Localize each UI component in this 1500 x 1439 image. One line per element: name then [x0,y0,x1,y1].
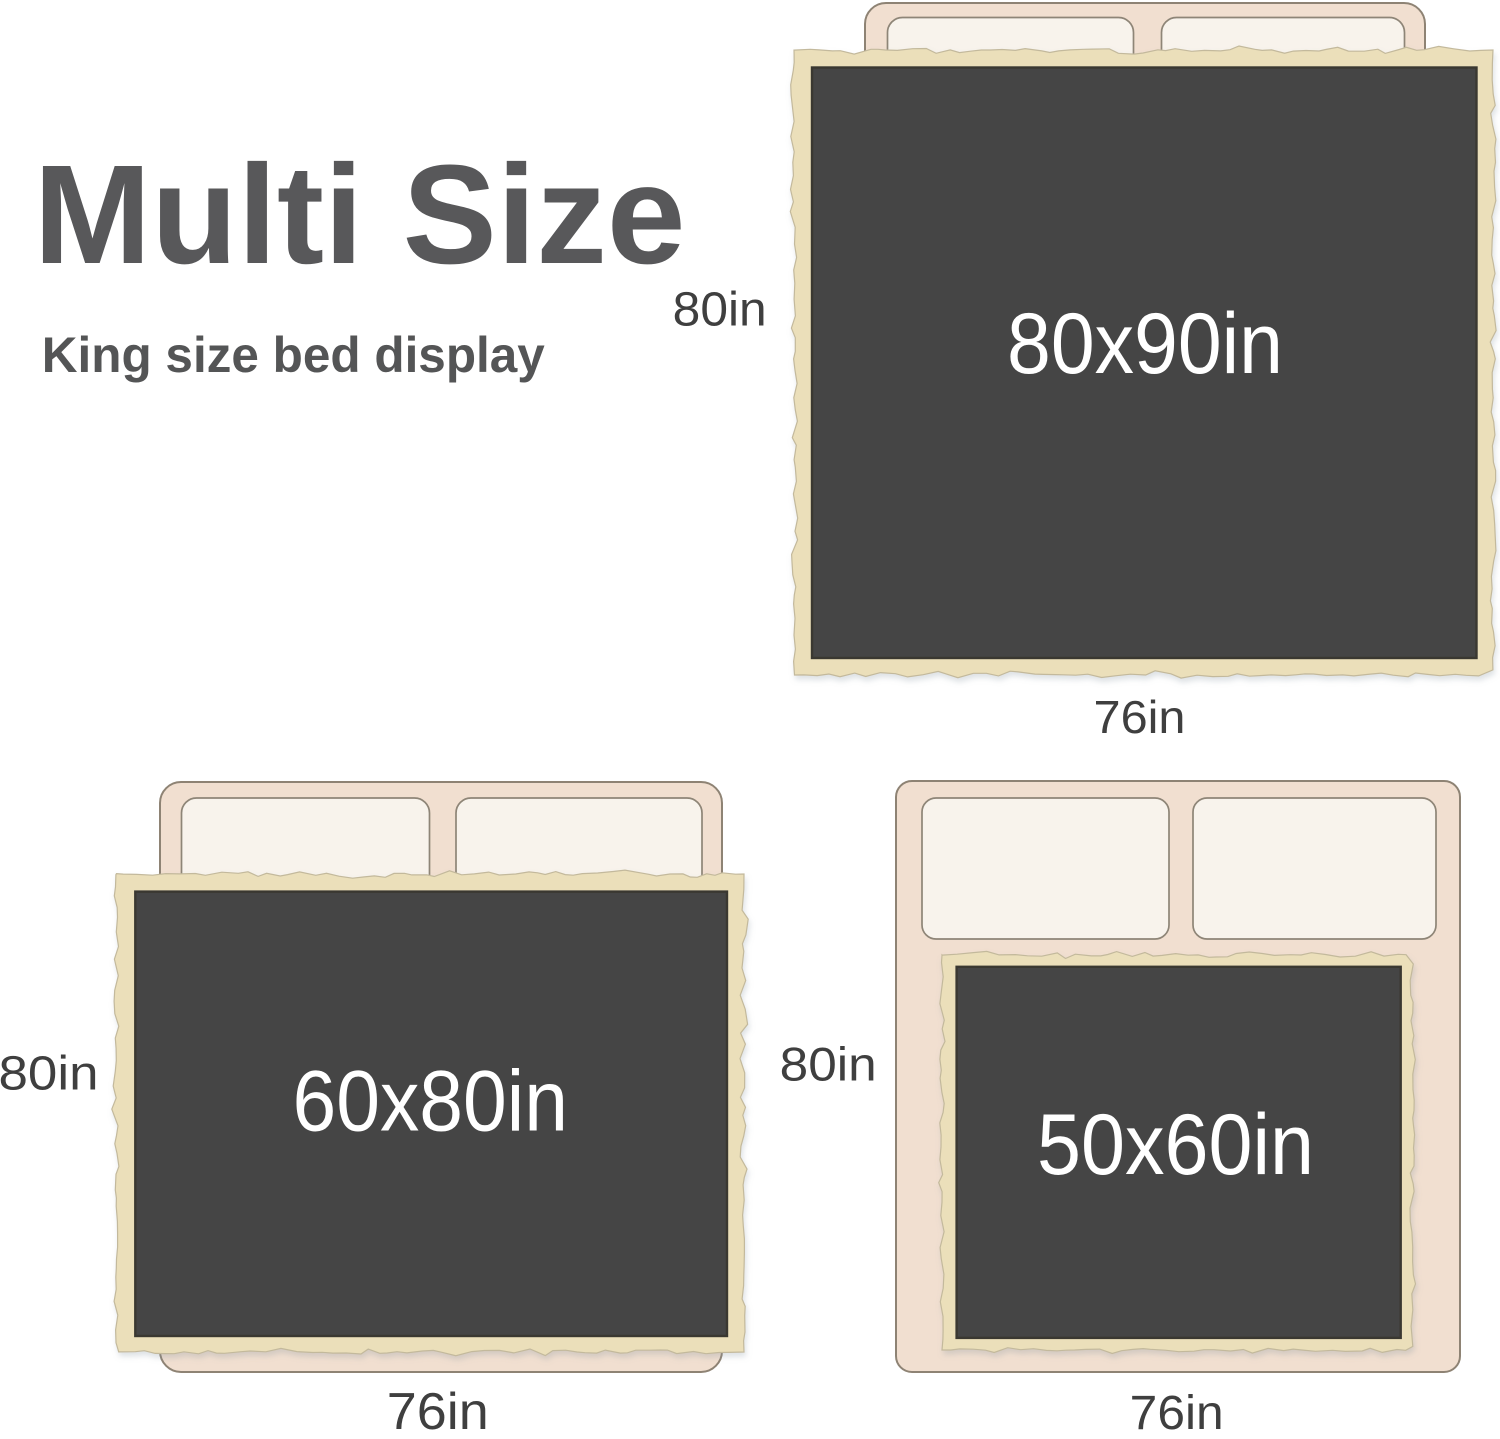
svg-text:60x80in: 60x80in [293,1054,569,1150]
svg-text:76in: 76in [1094,691,1186,743]
svg-text:50x60in: 50x60in [1037,1097,1314,1193]
svg-text:76in: 76in [387,1383,489,1434]
svg-text:King size bed display: King size bed display [42,327,545,383]
svg-text:76in: 76in [1130,1387,1224,1434]
svg-text:Multi Size: Multi Size [34,135,686,293]
svg-text:80in: 80in [673,283,767,336]
svg-text:80in: 80in [780,1037,877,1090]
svg-text:80in: 80in [0,1048,99,1101]
svg-text:80x90in: 80x90in [1007,296,1283,392]
